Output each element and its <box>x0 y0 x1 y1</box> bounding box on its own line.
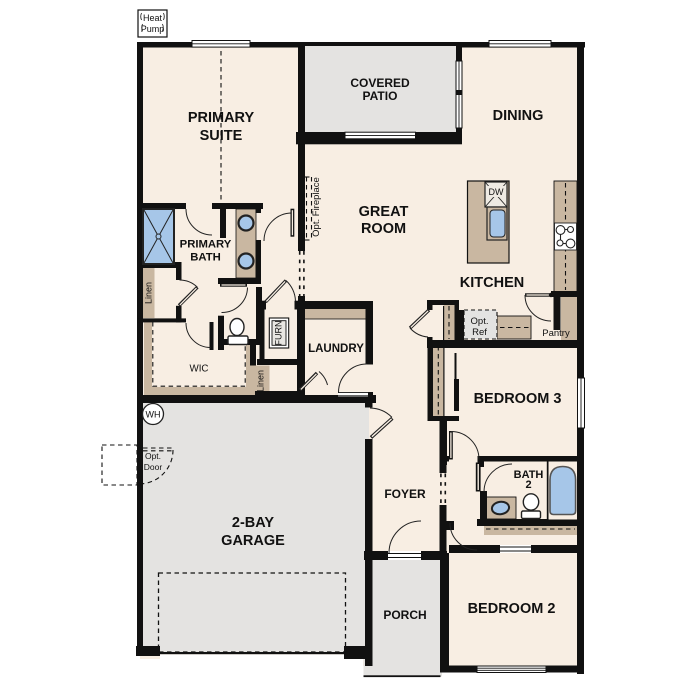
svg-text:WIC: WIC <box>189 364 208 375</box>
svg-text:LAUNDRY: LAUNDRY <box>308 343 364 355</box>
svg-text:Pantry: Pantry <box>542 328 570 339</box>
svg-text:Door: Door <box>144 462 163 472</box>
svg-text:KITCHEN: KITCHEN <box>460 275 524 291</box>
svg-text:Opt.: Opt. <box>145 451 161 461</box>
svg-text:GARAGE: GARAGE <box>221 533 285 549</box>
svg-text:BEDROOM 2: BEDROOM 2 <box>468 601 556 617</box>
svg-text:DINING: DINING <box>493 108 544 124</box>
svg-text:Opt.: Opt. <box>471 316 489 327</box>
svg-text:Opt. Fireplace: Opt. Fireplace <box>311 177 322 237</box>
svg-text:BATH: BATH <box>190 252 221 264</box>
svg-text:2-BAY: 2-BAY <box>232 515 275 531</box>
svg-text:2: 2 <box>525 479 531 491</box>
svg-text:Linen: Linen <box>144 282 154 304</box>
svg-text:Ref: Ref <box>472 327 487 338</box>
svg-text:GREAT: GREAT <box>359 204 409 220</box>
svg-text:Heat: Heat <box>143 13 163 23</box>
svg-text:SUITE: SUITE <box>200 128 243 144</box>
svg-text:PORCH: PORCH <box>383 608 426 622</box>
svg-text:DW: DW <box>489 187 504 197</box>
svg-text:FURN: FURN <box>274 321 284 346</box>
svg-text:BEDROOM 3: BEDROOM 3 <box>474 391 562 407</box>
svg-text:FOYER: FOYER <box>384 487 426 501</box>
svg-text:Pump: Pump <box>141 24 165 34</box>
svg-text:PRIMARY: PRIMARY <box>180 239 232 251</box>
svg-text:COVERED: COVERED <box>350 76 410 90</box>
svg-text:ROOM: ROOM <box>361 221 406 237</box>
svg-text:Linen: Linen <box>256 370 266 392</box>
svg-text:PRIMARY: PRIMARY <box>188 110 255 126</box>
svg-text:PATIO: PATIO <box>363 89 398 103</box>
svg-text:WH: WH <box>146 410 161 420</box>
